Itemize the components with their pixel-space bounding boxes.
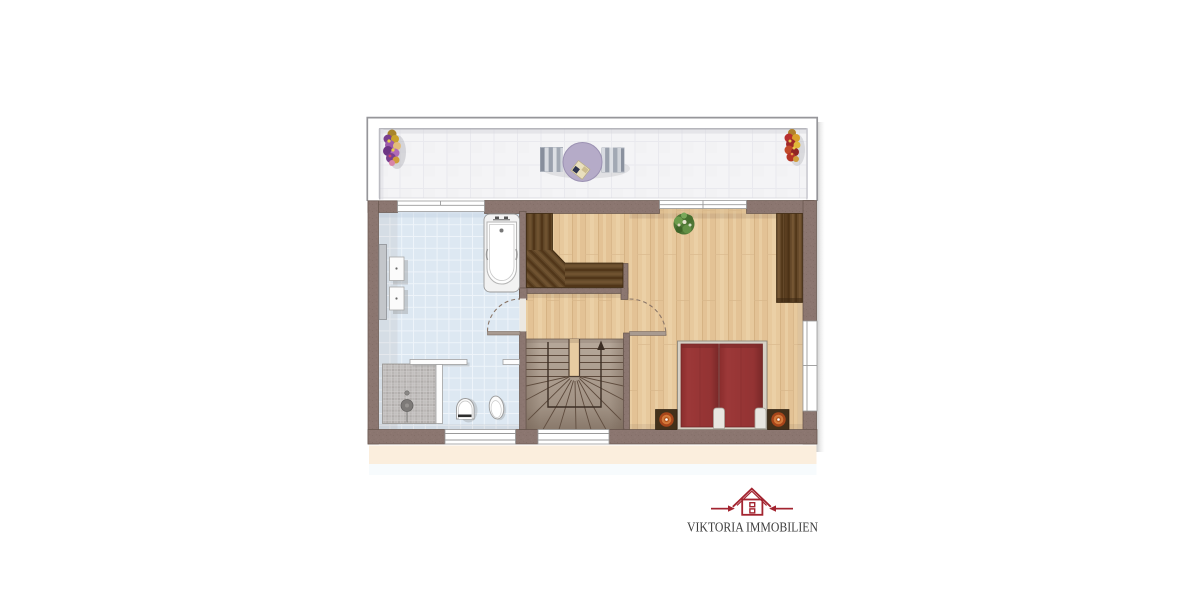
svg-text:VIKTORIA IMMOBILIEN: VIKTORIA IMMOBILIEN — [687, 520, 818, 535]
